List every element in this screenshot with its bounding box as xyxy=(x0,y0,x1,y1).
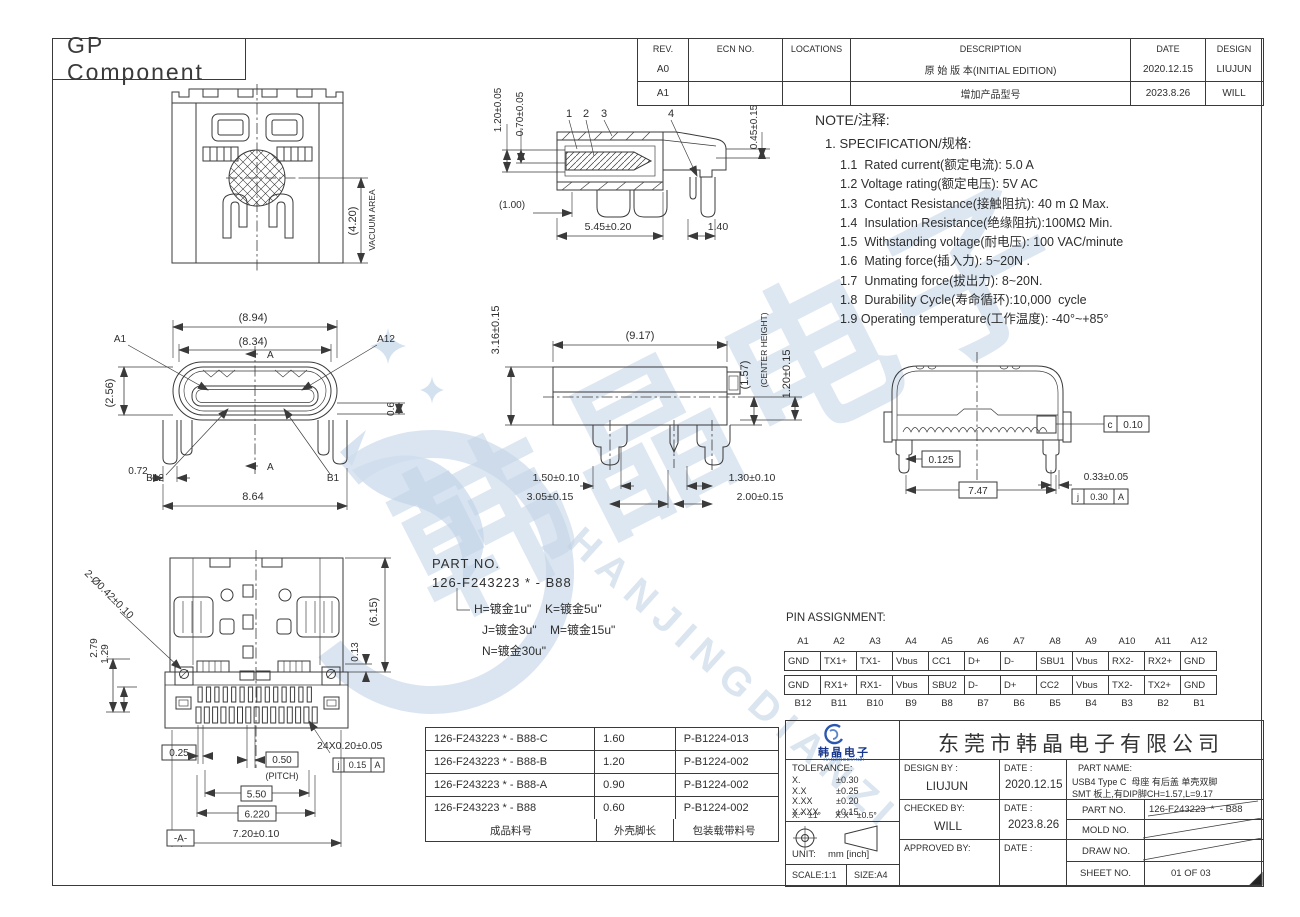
tolerance-row: X. ±0.30 xyxy=(792,775,892,786)
draw-no-label: DRAW NO. xyxy=(1082,846,1130,857)
tolerance-value: ±0.25 xyxy=(836,786,858,797)
plating-option-m: M=镀金15u" xyxy=(550,621,615,638)
plating-option-j: J=镀金3u" xyxy=(482,621,537,638)
pin-row-b-cell: CC2 xyxy=(1036,675,1073,695)
packaging-part-cell: P-B1224-002 xyxy=(675,797,778,819)
approved-by-label: APPROVED BY: xyxy=(904,843,971,853)
design-cell: LIUJUN xyxy=(1205,58,1262,81)
pin-column: A2 TX1+ RX1+ B11 xyxy=(821,636,857,713)
part-name-label: PART NAME: xyxy=(1078,763,1132,773)
part-no-label: PART NO. xyxy=(1082,805,1126,816)
pin-assignment-heading: PIN ASSIGNMENT: xyxy=(786,612,886,624)
shell-leg-length-cell: 0.60 xyxy=(594,797,675,819)
pin-row-a-cell: TX1- xyxy=(856,651,893,671)
pin-row-a-cell: D- xyxy=(1000,651,1037,671)
shell-leg-length-cell: 0.90 xyxy=(594,774,675,796)
pin-bottom-label: B3 xyxy=(1109,698,1145,713)
pin-row-b-cell: D+ xyxy=(1000,675,1037,695)
ecn-cell xyxy=(688,82,782,105)
description-cell: 原 始 版 本(INITIAL EDITION) xyxy=(850,58,1130,81)
pin-bottom-label: B7 xyxy=(965,698,1001,713)
unit-value: mm [inch] xyxy=(828,849,869,860)
sheet-no-value: 01 OF 03 xyxy=(1171,868,1211,879)
sheet-title: GP Component xyxy=(67,32,245,86)
packaging-part-cell: P-B1224-013 xyxy=(675,728,778,750)
pin-bottom-label: B5 xyxy=(1037,698,1073,713)
packaging-part-cell: P-B1224-002 xyxy=(675,774,778,796)
pin-top-label: A8 xyxy=(1037,636,1073,651)
pin-row-a-cell: CC1 xyxy=(928,651,965,671)
tolerance-key: X. xyxy=(792,775,836,786)
tolerance-heading: TOLERANCE: xyxy=(792,763,853,774)
pin-row-a-cell: Vbus xyxy=(892,651,929,671)
locations-cell xyxy=(782,82,850,105)
pin-row-b-cell: RX1- xyxy=(856,675,893,695)
design-by-value: LIUJUN xyxy=(926,779,968,793)
part-no-callout-number: 126-F243223 * - B88 xyxy=(432,575,572,590)
scale-label: SCALE:1:1 xyxy=(792,870,837,880)
parts-table-row: 126-F243223 * - B88-B 1.20 P-B1224-002 xyxy=(426,750,778,773)
pin-bottom-label: B6 xyxy=(1001,698,1037,713)
rev-cell: A1 xyxy=(638,82,688,105)
finished-part-cell: 126-F243223 * - B88-B xyxy=(426,751,594,773)
revision-table-header: REV. ECN NO. LOCATIONS DESCRIPTION DATE … xyxy=(638,39,1263,58)
revision-rows: A0 原 始 版 本(INITIAL EDITION) 2020.12.15 L… xyxy=(638,58,1263,105)
pin-column: A6 D+ D- B7 xyxy=(965,636,1001,713)
part-no-callout-label: PART NO. xyxy=(432,556,500,571)
note-line: 1.6 Mating force(插入力): 5~20N . xyxy=(840,250,1290,269)
finished-part-cell: 126-F243223 * - B88 xyxy=(426,797,594,819)
pin-bottom-label: B1 xyxy=(1181,698,1217,713)
sheet-no-label: SHEET NO. xyxy=(1080,868,1131,879)
notes-spec-heading: 1. SPECIFICATION/规格: xyxy=(825,133,1290,152)
pin-column: A7 D- D+ B6 xyxy=(1001,636,1037,713)
pin-column: A8 SBU1 CC2 B5 xyxy=(1037,636,1073,713)
note-line: 1.1 Rated current(额定电流): 5.0 A xyxy=(840,154,1290,173)
parts-table-row: 126-F243223 * - B88-A 0.90 P-B1224-002 xyxy=(426,773,778,796)
plating-option-h: H=镀金1u" xyxy=(474,600,531,617)
pin-top-label: A7 xyxy=(1001,636,1037,651)
pin-column: A4 Vbus Vbus B9 xyxy=(893,636,929,713)
description-header: DESCRIPTION xyxy=(850,39,1130,58)
design-header: DESIGN xyxy=(1205,39,1262,58)
parts-table-footer: 成品料号 外壳脚长 包装载带料号 xyxy=(426,819,778,841)
finished-part-cell: 126-F243223 * - B88-C xyxy=(426,728,594,750)
pin-top-label: A11 xyxy=(1145,636,1181,651)
plating-option-n: N=镀金30u" xyxy=(482,642,546,659)
note-line: 1.8 Durability Cycle(寿命循环):10,000 cycle xyxy=(840,289,1290,308)
pin-column: A1 GND GND B12 xyxy=(785,636,821,713)
design-date-label: DATE : xyxy=(1004,763,1032,773)
shell-leg-length-cell: 1.60 xyxy=(594,728,675,750)
finished-part-footer: 成品料号 xyxy=(426,819,596,841)
parts-table-rows: 126-F243223 * - B88-C 1.60 P-B1224-013 1… xyxy=(426,728,778,819)
pin-bottom-label: B4 xyxy=(1073,698,1109,713)
pin-row-a-cell: GND xyxy=(784,651,821,671)
tolerance-value: ±0.30 xyxy=(836,775,858,786)
design-cell: WILL xyxy=(1205,82,1262,105)
pin-row-a-cell: GND xyxy=(1180,651,1217,671)
tolerance-value: ±0.20 xyxy=(836,796,858,807)
tolerance-angles: X.° ±1° X.X° ±0.5° xyxy=(792,810,877,820)
notes-block: NOTE/注释: 1. SPECIFICATION/规格: 1.1 Rated … xyxy=(815,110,1290,328)
date-cell: 2020.12.15 xyxy=(1130,58,1205,81)
approved-date-label: DATE : xyxy=(1004,843,1032,853)
checked-by-value: WILL xyxy=(934,819,962,833)
pin-top-label: A9 xyxy=(1073,636,1109,651)
checked-by-label: CHECKED BY: xyxy=(904,803,965,813)
mold-no-label: MOLD NO. xyxy=(1082,825,1129,836)
part-name-line2: SMT 板上,有DIP脚CH=1.57,L=9.17 xyxy=(1072,787,1213,800)
engineering-drawing-sheet: { "frame": { "sheet_title": "GP Componen… xyxy=(0,0,1300,917)
pin-bottom-label: B9 xyxy=(893,698,929,713)
pin-row-b-cell: Vbus xyxy=(892,675,929,695)
company-name: 东莞市韩晶电子有限公司 xyxy=(901,728,1261,758)
part-no-value: 126-F243223 * - B88 xyxy=(1149,804,1242,815)
pin-assignment-table: A1 GND GND B12 A2 TX1+ RX1+ B11 A3 TX1- … xyxy=(785,636,1217,713)
tolerance-key: X.XX xyxy=(792,796,836,807)
tolerance-row: X.XX ±0.20 xyxy=(792,796,892,807)
revision-row: A1 增加产品型号 2023.8.26 WILL xyxy=(638,81,1263,105)
pin-row-a-cell: TX1+ xyxy=(820,651,857,671)
sheet-title-box: GP Component xyxy=(52,38,246,80)
note-line: 1.2 Voltage rating(额定电压): 5V AC xyxy=(840,173,1290,192)
pin-column: A5 CC1 SBU2 B8 xyxy=(929,636,965,713)
finished-part-cell: 126-F243223 * - B88-A xyxy=(426,774,594,796)
date-cell: 2023.8.26 xyxy=(1130,82,1205,105)
pin-column: A10 RX2- TX2- B3 xyxy=(1109,636,1145,713)
pin-top-label: A5 xyxy=(929,636,965,651)
ecn-header: ECN NO. xyxy=(688,39,782,58)
note-line: 1.7 Unmating force(拔出力): 8~20N. xyxy=(840,270,1290,289)
pin-top-label: A4 xyxy=(893,636,929,651)
locations-header: LOCATIONS xyxy=(782,39,850,58)
pin-row-b-cell: GND xyxy=(1180,675,1217,695)
design-by-label: DESIGN BY : xyxy=(904,763,958,773)
pin-top-label: A6 xyxy=(965,636,1001,651)
pin-row-a-cell: RX2+ xyxy=(1144,651,1181,671)
pin-row-b-cell: RX1+ xyxy=(820,675,857,695)
locations-cell xyxy=(782,58,850,81)
note-line: 1.4 Insulation Resistance(绝缘阻抗):100MΩ Mi… xyxy=(840,212,1290,231)
unit-label: UNIT: xyxy=(792,849,816,860)
pin-column: A12 GND GND B1 xyxy=(1181,636,1217,713)
pin-row-a-cell: SBU1 xyxy=(1036,651,1073,671)
notes-heading: NOTE/注释: xyxy=(815,110,1290,130)
ecn-cell xyxy=(688,58,782,81)
revision-table: REV. ECN NO. LOCATIONS DESCRIPTION DATE … xyxy=(637,38,1264,106)
pin-top-label: A3 xyxy=(857,636,893,651)
pin-row-b-cell: SBU2 xyxy=(928,675,965,695)
checked-date-label: DATE : xyxy=(1004,803,1032,813)
size-label: SIZE:A4 xyxy=(854,870,888,880)
parts-table: 126-F243223 * - B88-C 1.60 P-B1224-013 1… xyxy=(425,727,779,842)
pin-bottom-label: B8 xyxy=(929,698,965,713)
date-header: DATE xyxy=(1130,39,1205,58)
pin-row-b-cell: TX2+ xyxy=(1144,675,1181,695)
plating-option-k: K=镀金5u" xyxy=(545,600,602,617)
pin-row-a-cell: RX2- xyxy=(1108,651,1145,671)
tolerance-key: X.X xyxy=(792,786,836,797)
packaging-part-cell: P-B1224-002 xyxy=(675,751,778,773)
checked-date-value: 2023.8.26 xyxy=(1008,819,1059,831)
shell-leg-length-footer: 外壳脚长 xyxy=(596,819,673,841)
pin-column: A9 Vbus Vbus B4 xyxy=(1073,636,1109,713)
rev-header: REV. xyxy=(638,39,688,58)
pin-column: A3 TX1- RX1- B10 xyxy=(857,636,893,713)
note-line: 1.5 Withstanding voltage(耐电压): 100 VAC/m… xyxy=(840,231,1290,250)
pin-row-b-cell: D- xyxy=(964,675,1001,695)
pin-top-label: A2 xyxy=(821,636,857,651)
pin-row-b-cell: TX2- xyxy=(1108,675,1145,695)
rev-cell: A0 xyxy=(638,58,688,81)
pin-top-label: A10 xyxy=(1109,636,1145,651)
note-line: 1.3 Contact Resistance(接触阻抗): 40 m Ω Max… xyxy=(840,193,1290,212)
design-date-value: 2020.12.15 xyxy=(1005,779,1063,791)
description-cell: 增加产品型号 xyxy=(850,82,1130,105)
pin-bottom-label: B10 xyxy=(857,698,893,713)
pin-top-label: A1 xyxy=(785,636,821,651)
pin-row-a-cell: Vbus xyxy=(1072,651,1109,671)
pin-bottom-label: B12 xyxy=(785,698,821,713)
notes-items: 1.1 Rated current(额定电流): 5.0 A 1.2 Volta… xyxy=(815,154,1290,328)
title-block: 韩晶电子 HANJINGDIANZI 东莞市韩晶电子有限公司 TOLERANCE… xyxy=(785,720,1264,887)
shell-leg-length-cell: 1.20 xyxy=(594,751,675,773)
packaging-part-footer: 包装载带料号 xyxy=(673,819,774,841)
note-line: 1.9 Operating temperature(工作温度): -40°~+8… xyxy=(840,308,1290,327)
pin-bottom-label: B11 xyxy=(821,698,857,713)
pin-bottom-label: B2 xyxy=(1145,698,1181,713)
pin-top-label: A12 xyxy=(1181,636,1217,651)
pin-row-b-cell: GND xyxy=(784,675,821,695)
logo-subtext: HANJINGDIANZI xyxy=(794,757,894,762)
tolerance-row: X.X ±0.25 xyxy=(792,786,892,797)
pin-column: A11 RX2+ TX2+ B2 xyxy=(1145,636,1181,713)
pin-row-b-cell: Vbus xyxy=(1072,675,1109,695)
parts-table-row: 126-F243223 * - B88 0.60 P-B1224-002 xyxy=(426,796,778,819)
revision-row: A0 原 始 版 本(INITIAL EDITION) 2020.12.15 L… xyxy=(638,58,1263,81)
pin-row-a-cell: D+ xyxy=(964,651,1001,671)
parts-table-row: 126-F243223 * - B88-C 1.60 P-B1224-013 xyxy=(426,728,778,750)
